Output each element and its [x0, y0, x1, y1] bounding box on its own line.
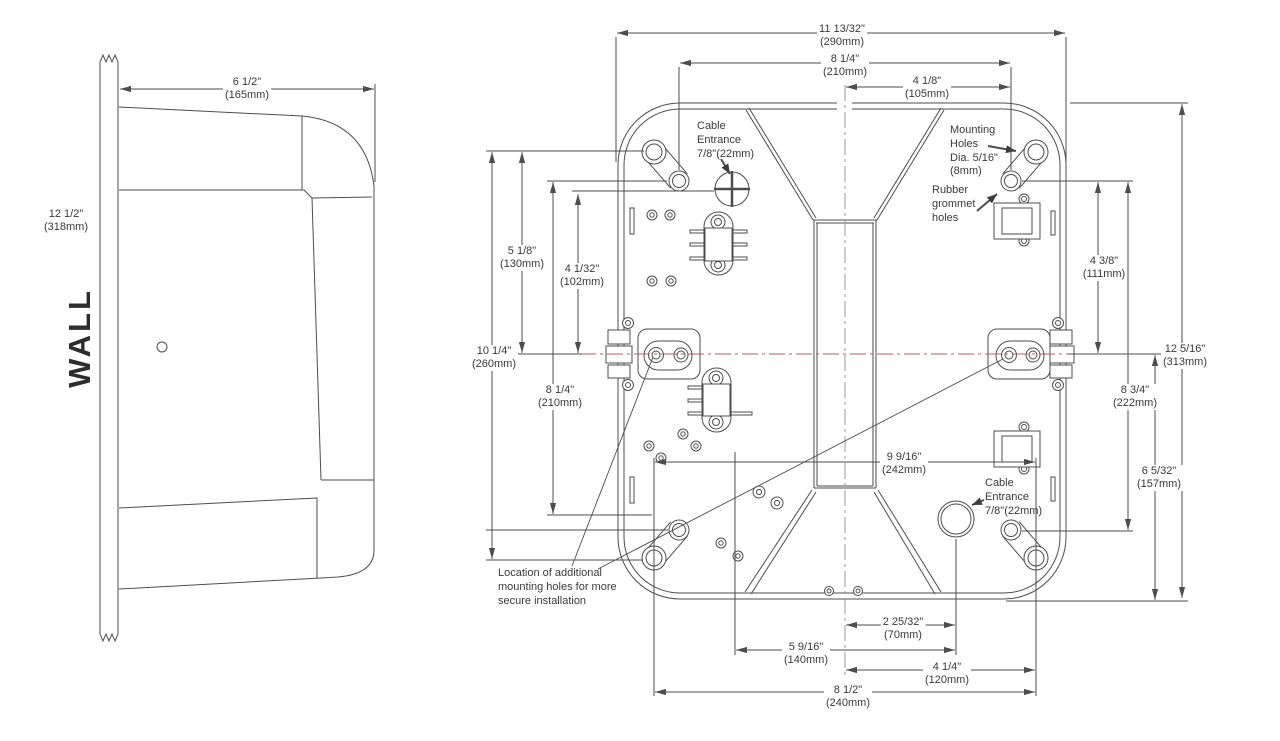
dim-side-height: 12 1/2" (318mm): [42, 208, 90, 234]
sensor-hole: [157, 342, 167, 352]
dim-left-lower: 8 1/4" (210mm): [536, 384, 584, 410]
dim-bottom-holes-span: 9 9/16" (242mm): [880, 451, 928, 477]
dim-width-overall: 11 13/32" (290mm): [817, 23, 867, 49]
wall-lines: [100, 55, 118, 641]
dim-side-width: 6 1/2" (165mm): [223, 76, 271, 102]
dim-left-cable-to-center: 4 1/32" (102mm): [558, 263, 606, 289]
label-cable-entrance-top: Cable Entrance 7/8"(22mm): [697, 120, 754, 161]
dim-left-holes-outer: 10 1/4" (260mm): [470, 345, 518, 371]
dryer-profile: [119, 107, 374, 589]
label-additional-holes: Location of additional mounting holes fo…: [498, 567, 617, 608]
label-mounting-holes: Mounting Holes Dia. 5/16" (8mm): [950, 124, 998, 179]
drawing-linework: [0, 0, 1280, 741]
back-plate-view: [606, 100, 1074, 599]
wall-label: WALL: [62, 288, 98, 388]
dim-left-upper: 5 1/8" (130mm): [498, 245, 546, 271]
dim-height-overall: 12 5/16" (313mm): [1161, 343, 1209, 369]
label-cable-entrance-bottom: Cable Entrance 7/8"(22mm): [985, 477, 1042, 518]
dim-hole-half-top: 4 1/8" (105mm): [903, 75, 951, 101]
dim-bottom-span: 8 1/2" (240mm): [824, 684, 872, 710]
dim-right-upper: 4 3/8" (111mm): [1081, 255, 1127, 281]
technical-drawing: WALL 6 1/2" (165mm) 12 1/2" (318mm) 11 1…: [0, 0, 1280, 741]
dim-bottom-keyhole-offset: 4 1/4" (120mm): [923, 661, 971, 687]
cable-entrance-hole-bottom: [938, 501, 974, 537]
dim-right-span: 8 3/4" (222mm): [1111, 384, 1159, 410]
dim-bottom-mid-span: 5 9/16" (140mm): [782, 641, 830, 667]
dim-right-lower: 6 5/32" (157mm): [1135, 465, 1183, 491]
label-rubber-grommet: Rubber grommet holes: [932, 184, 975, 225]
dim-bottom-cable-offset: 2 25/32" (70mm): [881, 616, 926, 642]
side-view: [100, 55, 375, 641]
dim-hole-span-top: 8 1/4" (210mm): [821, 53, 869, 79]
